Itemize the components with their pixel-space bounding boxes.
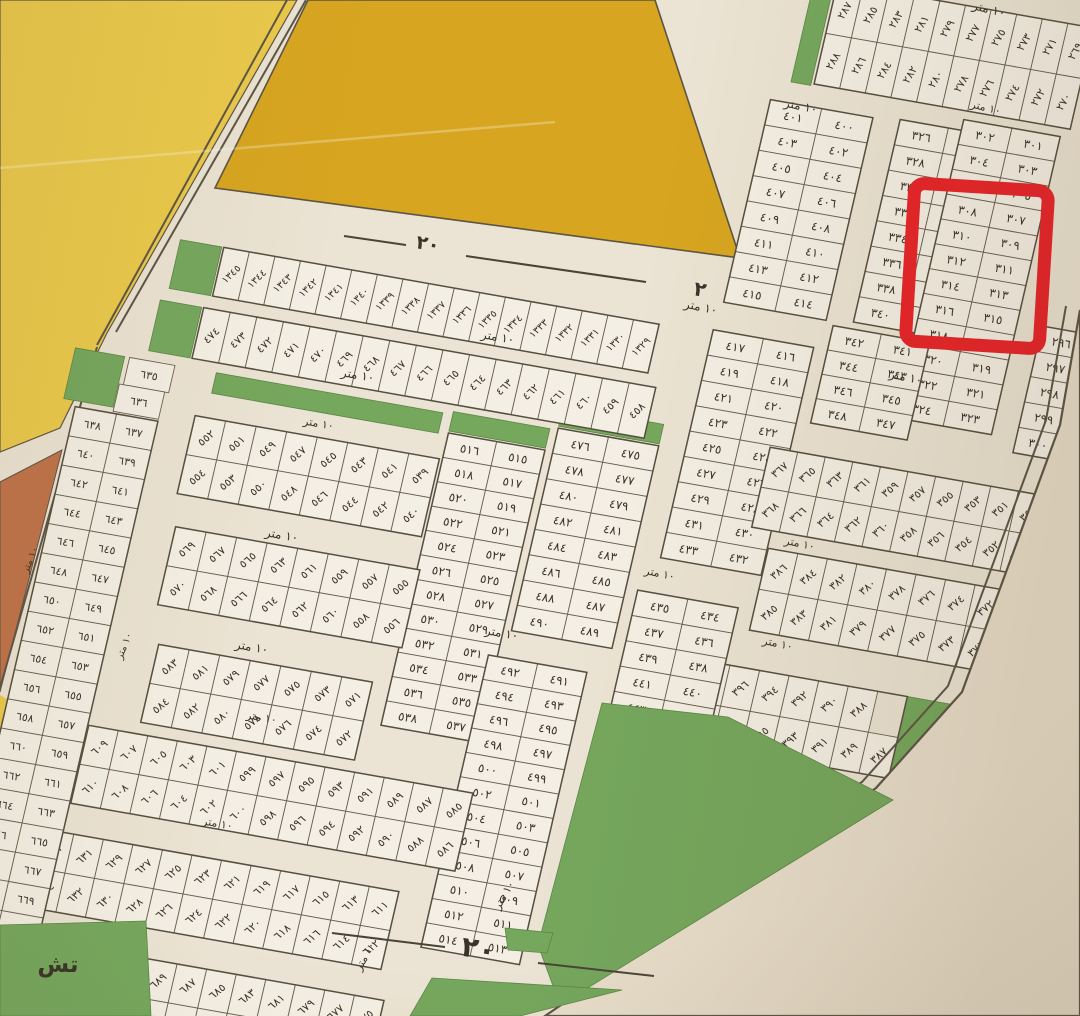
map-photo: ٢٨٧٢٨٥٢٨٣٢٨١٢٧٩٢٧٧٢٧٥٢٧٣٢٧١٢٦٩٢٨٨٢٨٦٢٨٤٢… [0,0,1080,1016]
street-label-major: ٢٠ [415,231,441,256]
street-label-major: ٢٠ [459,930,498,968]
cadastral-map: ٢٨٧٢٨٥٢٨٣٢٨١٢٧٩٢٧٧٢٧٥٢٧٣٢٧١٢٦٩٢٨٨٢٨٦٢٨٤٢… [0,0,1080,1016]
green-strip-label: تش [37,952,78,978]
